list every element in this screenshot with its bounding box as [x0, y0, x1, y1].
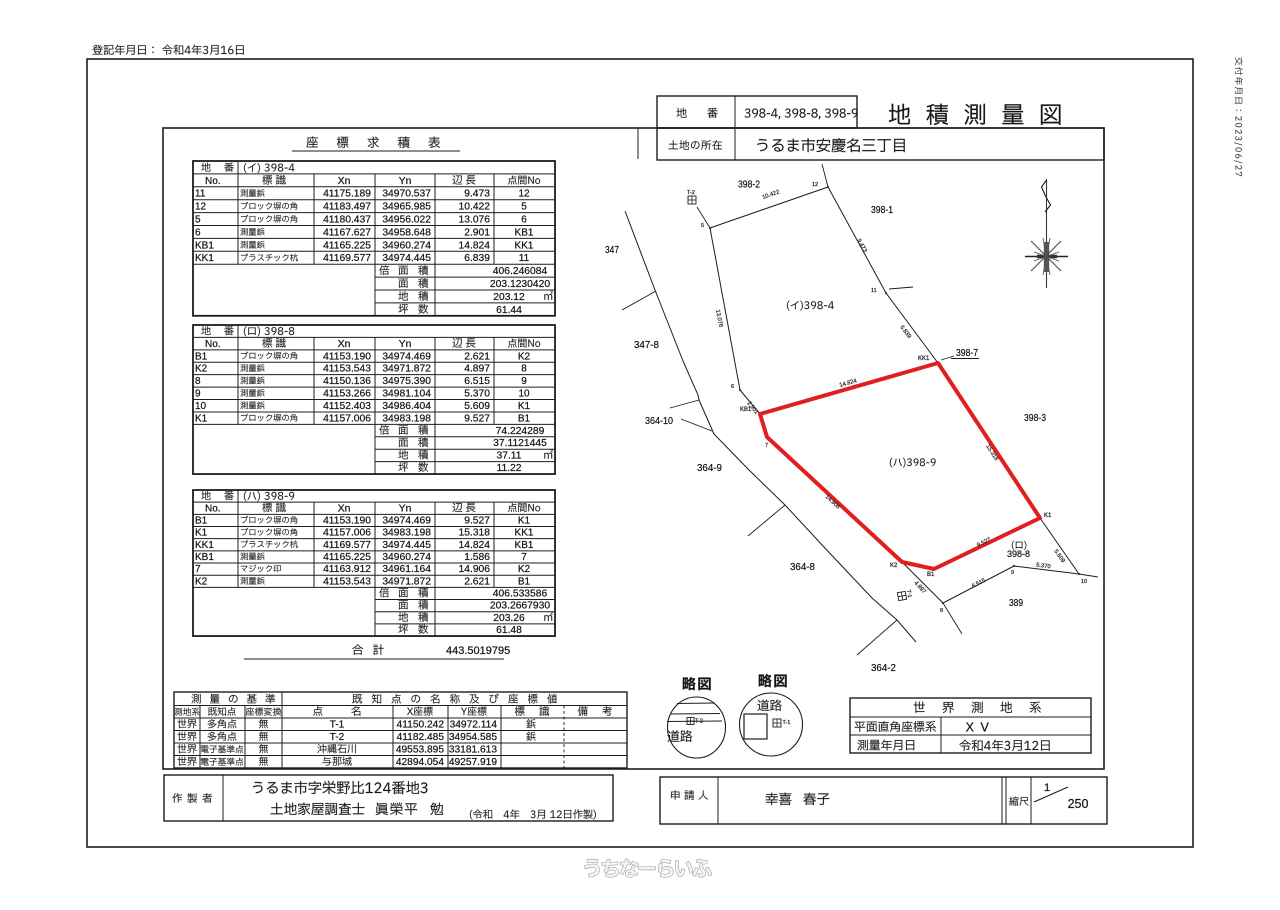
svg-text:6.515: 6.515	[971, 578, 987, 590]
svg-text:34974.469: 34974.469	[382, 351, 431, 362]
svg-text:6: 6	[731, 384, 734, 390]
svg-text:13.076: 13.076	[459, 215, 491, 226]
svg-text:7: 7	[765, 443, 768, 449]
svg-text:9.527: 9.527	[464, 516, 490, 527]
svg-text:203.26: 203.26	[493, 613, 525, 624]
svg-text:34981.104: 34981.104	[382, 389, 431, 400]
svg-text:K2: K2	[890, 563, 898, 569]
svg-text:41163.912: 41163.912	[323, 564, 371, 575]
svg-text:KB1: KB1	[195, 552, 214, 563]
svg-text:203.1230420: 203.1230420	[490, 279, 550, 290]
svg-text:443.5019795: 443.5019795	[446, 645, 510, 657]
svg-text:41153.190: 41153.190	[323, 516, 371, 527]
svg-text:14.824: 14.824	[459, 240, 491, 251]
svg-text:4.897: 4.897	[464, 364, 490, 375]
svg-text:34974.469: 34974.469	[382, 516, 431, 527]
svg-text:12: 12	[518, 189, 530, 200]
svg-text:No.: No.	[205, 503, 221, 514]
svg-text:406.246084: 406.246084	[493, 266, 548, 277]
svg-text:37.1121445: 37.1121445	[493, 438, 547, 449]
svg-text:Yn: Yn	[399, 175, 412, 187]
svg-text:6.515: 6.515	[464, 376, 490, 387]
svg-text:8: 8	[521, 364, 527, 375]
svg-text:KK1: KK1	[515, 240, 534, 251]
svg-text:9: 9	[195, 389, 201, 400]
svg-text:250: 250	[1068, 797, 1089, 811]
svg-text:KK1: KK1	[195, 540, 214, 551]
svg-text:K2: K2	[195, 364, 208, 375]
svg-text:No.: No.	[205, 339, 221, 350]
svg-text:203.12: 203.12	[493, 292, 525, 303]
svg-text:41175.189: 41175.189	[323, 189, 371, 200]
svg-text:34983.198: 34983.198	[382, 528, 431, 539]
svg-text:10: 10	[518, 389, 530, 400]
svg-text:9: 9	[1011, 570, 1014, 576]
svg-text:6: 6	[521, 215, 527, 226]
svg-text:KB1: KB1	[195, 240, 214, 251]
svg-text:T-2: T-2	[687, 190, 695, 196]
svg-text:B1: B1	[518, 413, 531, 424]
svg-text:398-3: 398-3	[1024, 412, 1046, 424]
svg-text:34956.022: 34956.022	[382, 215, 431, 226]
svg-text:14.906: 14.906	[459, 564, 491, 575]
svg-text:34975.390: 34975.390	[382, 376, 431, 387]
svg-text:1: 1	[1044, 782, 1050, 794]
svg-text:41157.006: 41157.006	[323, 528, 371, 539]
svg-text:9: 9	[521, 376, 527, 387]
svg-text:34986.404: 34986.404	[382, 401, 431, 412]
svg-text:2.621: 2.621	[464, 576, 490, 587]
svg-text:41152.403: 41152.403	[323, 401, 371, 412]
svg-text:34983.198: 34983.198	[382, 413, 431, 424]
svg-text:10.422: 10.422	[459, 202, 491, 213]
svg-text:5.370: 5.370	[464, 389, 490, 400]
svg-text:203.2667930: 203.2667930	[490, 601, 550, 612]
svg-text:Xn: Xn	[338, 338, 351, 350]
svg-text:KB1: KB1	[515, 227, 534, 238]
svg-text:389: 389	[1009, 597, 1023, 609]
svg-text:Xn: Xn	[338, 502, 351, 514]
svg-text:9.527: 9.527	[464, 413, 490, 424]
svg-text:No.: No.	[205, 176, 221, 187]
svg-text:B1: B1	[927, 572, 935, 578]
svg-text:11: 11	[871, 288, 877, 294]
svg-text:41165.225: 41165.225	[323, 240, 371, 251]
svg-text:B1: B1	[518, 576, 531, 587]
svg-text:61.48: 61.48	[496, 625, 522, 636]
svg-text:398-2: 398-2	[738, 179, 760, 191]
svg-text:364-8: 364-8	[790, 561, 815, 573]
svg-text:KB1: KB1	[515, 540, 534, 551]
svg-text:41157.006: 41157.006	[323, 413, 371, 424]
svg-text:42894.054: 42894.054	[396, 757, 444, 768]
svg-text:34954.585: 34954.585	[449, 732, 497, 743]
svg-text:B1: B1	[195, 351, 208, 362]
svg-text:X V: X V	[966, 721, 991, 735]
svg-text:K1: K1	[195, 528, 208, 539]
svg-text:12: 12	[195, 202, 207, 213]
svg-text:11: 11	[195, 189, 206, 200]
svg-text:KK1: KK1	[515, 528, 534, 539]
svg-text:8: 8	[195, 376, 201, 387]
svg-text:K1: K1	[518, 516, 531, 527]
svg-text:2.901: 2.901	[464, 227, 490, 238]
svg-text:10: 10	[195, 401, 207, 412]
svg-text:41182.485: 41182.485	[397, 732, 445, 743]
svg-text:61.44: 61.44	[496, 305, 522, 316]
svg-text:10: 10	[1081, 579, 1087, 585]
svg-text:34961.164: 34961.164	[382, 564, 431, 575]
svg-text:12: 12	[812, 182, 818, 188]
svg-text:1.586: 1.586	[464, 552, 490, 563]
svg-text:6.839: 6.839	[464, 253, 490, 264]
svg-text:K2: K2	[195, 576, 208, 587]
svg-text:41169.577: 41169.577	[323, 253, 371, 264]
svg-text:364-10: 364-10	[645, 415, 673, 427]
svg-text:Yn: Yn	[399, 338, 412, 350]
svg-text:41150.242: 41150.242	[397, 720, 445, 731]
svg-text:11.22: 11.22	[496, 463, 521, 474]
svg-text:6.839: 6.839	[898, 325, 912, 340]
svg-text:406.533586: 406.533586	[493, 589, 548, 600]
svg-text:41167.627: 41167.627	[323, 227, 371, 238]
svg-text:9.473: 9.473	[855, 238, 867, 254]
svg-text:41153.190: 41153.190	[323, 351, 371, 362]
svg-text:347-8: 347-8	[634, 339, 659, 351]
svg-text:41153.266: 41153.266	[323, 389, 371, 400]
svg-text:364-9: 364-9	[697, 462, 722, 474]
svg-text:T-2: T-2	[695, 719, 703, 725]
svg-text:5: 5	[195, 215, 201, 226]
svg-text:398-7: 398-7	[956, 347, 978, 359]
svg-text:7: 7	[195, 564, 201, 575]
svg-text:364-2: 364-2	[871, 662, 896, 674]
svg-text:5: 5	[701, 223, 704, 229]
svg-text:15.318: 15.318	[459, 528, 491, 539]
svg-text:11: 11	[519, 253, 530, 264]
svg-text:34970.537: 34970.537	[382, 189, 431, 200]
svg-text:41150.136: 41150.136	[323, 376, 371, 387]
svg-text:KK1: KK1	[195, 253, 214, 264]
svg-text:34958.648: 34958.648	[382, 227, 431, 238]
svg-text:37.11: 37.11	[496, 451, 521, 462]
svg-text:T-1: T-1	[783, 720, 791, 726]
svg-text:34971.872: 34971.872	[382, 576, 431, 587]
svg-text:398-8: 398-8	[1007, 549, 1030, 559]
svg-text:5: 5	[521, 202, 527, 213]
svg-text:K2: K2	[518, 351, 531, 362]
svg-text:34972.114: 34972.114	[450, 720, 498, 731]
svg-text:398-1: 398-1	[871, 204, 893, 216]
svg-text:K1: K1	[1044, 513, 1052, 519]
svg-text:10.422: 10.422	[762, 189, 781, 200]
svg-text:Yn: Yn	[399, 502, 412, 514]
svg-text:KK1: KK1	[918, 356, 930, 362]
svg-text:6: 6	[195, 227, 201, 238]
svg-text:41183.497: 41183.497	[323, 202, 371, 213]
svg-text:K1: K1	[518, 401, 531, 412]
svg-text:B1: B1	[195, 516, 208, 527]
svg-text:34960.274: 34960.274	[382, 240, 431, 251]
svg-text:34960.274: 34960.274	[382, 552, 431, 563]
svg-text:33181.613: 33181.613	[449, 745, 497, 756]
svg-text:41153.543: 41153.543	[323, 576, 371, 587]
svg-text:14.824: 14.824	[459, 540, 491, 551]
svg-text:13.076: 13.076	[714, 309, 723, 328]
svg-text:K1: K1	[195, 413, 208, 424]
svg-text:41169.577: 41169.577	[323, 540, 371, 551]
svg-text:5.609: 5.609	[464, 401, 490, 412]
svg-text:34974.445: 34974.445	[382, 253, 431, 264]
svg-text:9.473: 9.473	[464, 189, 490, 200]
svg-text:T-2: T-2	[330, 732, 345, 743]
svg-text:2.621: 2.621	[464, 351, 490, 362]
svg-text:5.609: 5.609	[1052, 549, 1065, 564]
svg-text:347: 347	[605, 244, 619, 256]
svg-text:41153.543: 41153.543	[323, 364, 371, 375]
svg-text:41180.437: 41180.437	[323, 215, 371, 226]
svg-text:Xn: Xn	[338, 175, 351, 187]
svg-text:T-1: T-1	[330, 720, 345, 731]
svg-text:7: 7	[521, 552, 527, 563]
svg-text:49553.895: 49553.895	[396, 745, 444, 756]
svg-text:4.897: 4.897	[913, 580, 927, 595]
svg-text:49257.919: 49257.919	[449, 757, 497, 768]
svg-text:8: 8	[940, 608, 943, 614]
svg-text:41165.225: 41165.225	[323, 552, 371, 563]
svg-text:34971.872: 34971.872	[382, 364, 431, 375]
svg-text:34965.985: 34965.985	[382, 202, 431, 213]
svg-text:34974.445: 34974.445	[382, 540, 431, 551]
svg-text:74.224289: 74.224289	[496, 426, 545, 437]
svg-text:K2: K2	[518, 564, 531, 575]
